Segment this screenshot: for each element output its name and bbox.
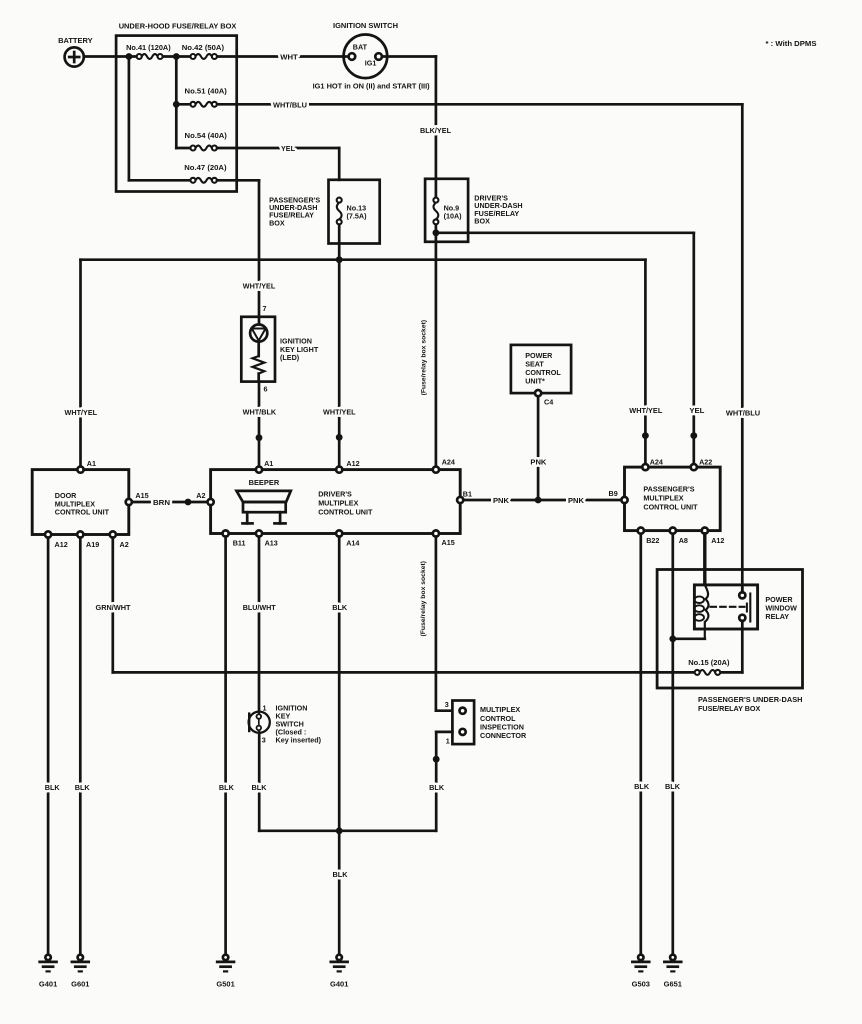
svg-text:BLK: BLK xyxy=(75,783,91,792)
svg-text:BLK: BLK xyxy=(333,870,349,879)
svg-text:A12: A12 xyxy=(711,536,724,545)
svg-text:GRN/WHT: GRN/WHT xyxy=(96,603,131,612)
svg-text:BLU/WHT: BLU/WHT xyxy=(243,603,276,612)
svg-text:CONTROL UNIT: CONTROL UNIT xyxy=(318,508,373,517)
svg-text:IGNITION SWITCH: IGNITION SWITCH xyxy=(333,21,398,30)
svg-text:A19: A19 xyxy=(86,540,99,549)
svg-text:IG1: IG1 xyxy=(365,59,377,68)
svg-text:B22: B22 xyxy=(646,536,659,545)
svg-text:A2: A2 xyxy=(120,540,129,549)
svg-text:B9: B9 xyxy=(609,489,618,498)
svg-text:A2: A2 xyxy=(196,491,205,500)
svg-text:No.51 (40A): No.51 (40A) xyxy=(185,87,228,96)
svg-text:WHT/BLK: WHT/BLK xyxy=(243,407,277,416)
svg-text:A24: A24 xyxy=(442,457,455,466)
svg-text:No.42 (50A): No.42 (50A) xyxy=(182,43,225,52)
svg-text:YEL: YEL xyxy=(281,144,295,153)
svg-text:YEL: YEL xyxy=(689,406,704,415)
svg-text:UNIT*: UNIT* xyxy=(525,376,545,385)
svg-text:(LED): (LED) xyxy=(280,353,300,362)
svg-text:BATTERY: BATTERY xyxy=(58,36,93,45)
svg-text:IG1 HOT in ON (II) and START (: IG1 HOT in ON (II) and START (III) xyxy=(313,83,430,90)
svg-text:6: 6 xyxy=(264,385,268,394)
svg-text:Key inserted): Key inserted) xyxy=(276,736,322,745)
svg-text:BLK: BLK xyxy=(429,783,445,792)
svg-text:WHT/YEL: WHT/YEL xyxy=(243,282,276,291)
svg-text:WHT: WHT xyxy=(280,52,298,61)
svg-text:WHT/YEL: WHT/YEL xyxy=(629,406,662,415)
svg-text:A1: A1 xyxy=(264,459,273,468)
svg-text:BLK: BLK xyxy=(252,783,268,792)
svg-text:7: 7 xyxy=(263,304,267,313)
svg-text:CONTROL UNIT: CONTROL UNIT xyxy=(643,503,698,512)
svg-text:G401: G401 xyxy=(330,980,348,989)
svg-text:A15: A15 xyxy=(135,491,148,500)
svg-text:MULTIPLEX: MULTIPLEX xyxy=(643,494,683,503)
svg-text:(7.5A): (7.5A) xyxy=(347,212,368,221)
svg-text:(Fuse/relay box socket): (Fuse/relay box socket) xyxy=(420,561,427,637)
svg-text:BLK: BLK xyxy=(332,603,348,612)
svg-text:CONTROL UNIT: CONTROL UNIT xyxy=(55,508,110,517)
svg-text:BLK: BLK xyxy=(665,782,681,791)
svg-text:BOX: BOX xyxy=(269,218,285,227)
svg-text:B1: B1 xyxy=(463,489,472,498)
svg-text:PASSENGER'S: PASSENGER'S xyxy=(643,485,694,494)
svg-text:G501: G501 xyxy=(216,980,234,989)
svg-text:A12: A12 xyxy=(55,540,68,549)
svg-text:FUSE/RELAY BOX: FUSE/RELAY BOX xyxy=(698,704,761,713)
svg-text:1: 1 xyxy=(446,737,450,746)
svg-text:A1: A1 xyxy=(87,459,96,468)
svg-text:WHT/BLU: WHT/BLU xyxy=(273,100,307,109)
svg-text:A12: A12 xyxy=(346,459,359,468)
svg-text:WHT/YEL: WHT/YEL xyxy=(65,408,98,417)
svg-text:BOX: BOX xyxy=(474,217,490,226)
svg-text:No.54 (40A): No.54 (40A) xyxy=(185,131,228,140)
svg-text:BLK: BLK xyxy=(634,782,650,791)
svg-text:(Fuse/relay box socket): (Fuse/relay box socket) xyxy=(421,320,428,396)
svg-text:(10A): (10A) xyxy=(444,212,463,221)
svg-text:G601: G601 xyxy=(71,980,89,989)
svg-text:PNK: PNK xyxy=(530,458,547,467)
svg-text:No.41 (120A): No.41 (120A) xyxy=(126,43,171,52)
svg-text:BRN: BRN xyxy=(153,498,170,507)
svg-text:3: 3 xyxy=(262,735,266,744)
svg-text:WHT/BLU: WHT/BLU xyxy=(726,408,760,417)
svg-text:G503: G503 xyxy=(632,980,650,989)
svg-text:PNK: PNK xyxy=(568,496,585,505)
svg-text:CONNECTOR: CONNECTOR xyxy=(480,731,527,740)
svg-text:BLK: BLK xyxy=(219,783,235,792)
svg-text:A15: A15 xyxy=(442,538,455,547)
svg-text:MULTIPLEX: MULTIPLEX xyxy=(318,499,358,508)
svg-text:No.15 (20A): No.15 (20A) xyxy=(688,658,730,667)
svg-text:A8: A8 xyxy=(679,536,688,545)
svg-text:G401: G401 xyxy=(39,980,57,989)
svg-text:PASSENGER'S UNDER-DASH: PASSENGER'S UNDER-DASH xyxy=(698,695,803,704)
svg-text:A13: A13 xyxy=(265,539,278,548)
svg-text:G651: G651 xyxy=(664,980,682,989)
svg-text:BLK/YEL: BLK/YEL xyxy=(420,126,451,135)
svg-text:No.47 (20A): No.47 (20A) xyxy=(184,163,227,172)
svg-text:RELAY: RELAY xyxy=(765,612,789,621)
svg-text:WHT/YEL: WHT/YEL xyxy=(323,407,356,416)
svg-text:UNDER-HOOD FUSE/RELAY BOX: UNDER-HOOD FUSE/RELAY BOX xyxy=(119,22,237,31)
svg-text:A22: A22 xyxy=(699,457,712,466)
svg-text:C4: C4 xyxy=(544,397,553,406)
svg-text:B11: B11 xyxy=(233,539,246,548)
svg-text:3: 3 xyxy=(445,700,449,709)
svg-text:BAT: BAT xyxy=(353,42,368,51)
svg-text:DRIVER'S: DRIVER'S xyxy=(318,490,352,499)
svg-text:A24: A24 xyxy=(650,457,663,466)
svg-text:A14: A14 xyxy=(346,539,359,548)
svg-text:PNK: PNK xyxy=(493,496,510,505)
svg-text:BLK: BLK xyxy=(45,783,61,792)
svg-text:BEEPER: BEEPER xyxy=(249,478,280,487)
svg-text:1: 1 xyxy=(263,704,267,713)
svg-text:* : With DPMS: * : With DPMS xyxy=(766,39,817,48)
